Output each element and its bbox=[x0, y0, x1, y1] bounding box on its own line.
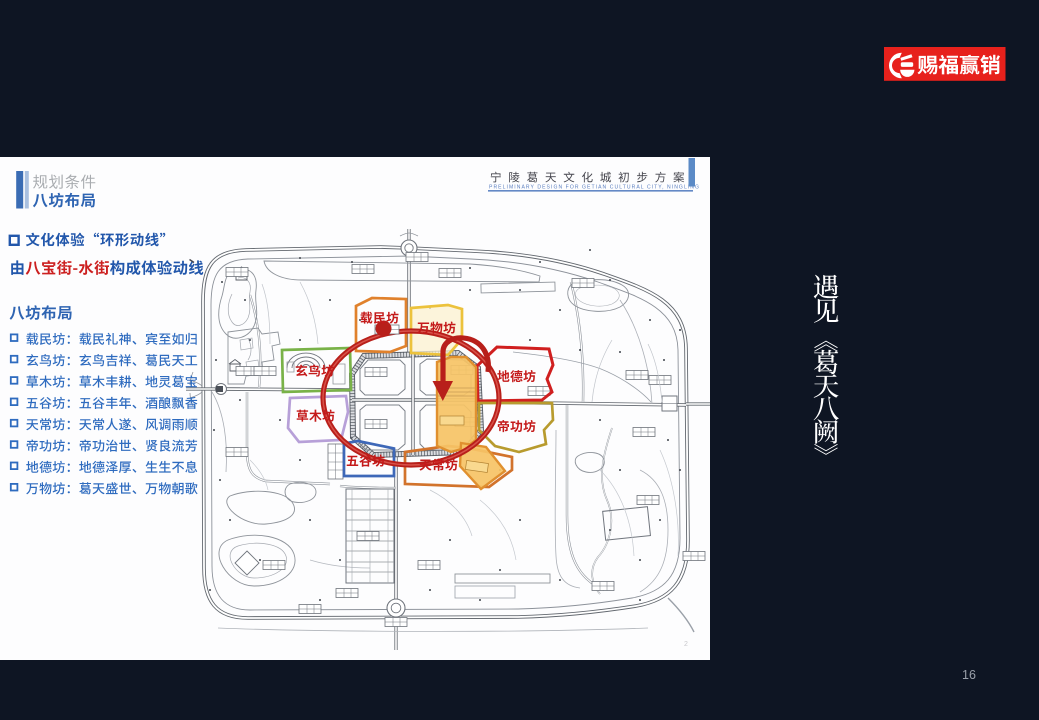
svg-text:16: 16 bbox=[962, 668, 976, 682]
svg-text:2: 2 bbox=[684, 641, 688, 648]
svg-text:PRELIMINARY DESIGN FOR GETIAN: PRELIMINARY DESIGN FOR GETIAN CULTURAL C… bbox=[489, 185, 700, 191]
